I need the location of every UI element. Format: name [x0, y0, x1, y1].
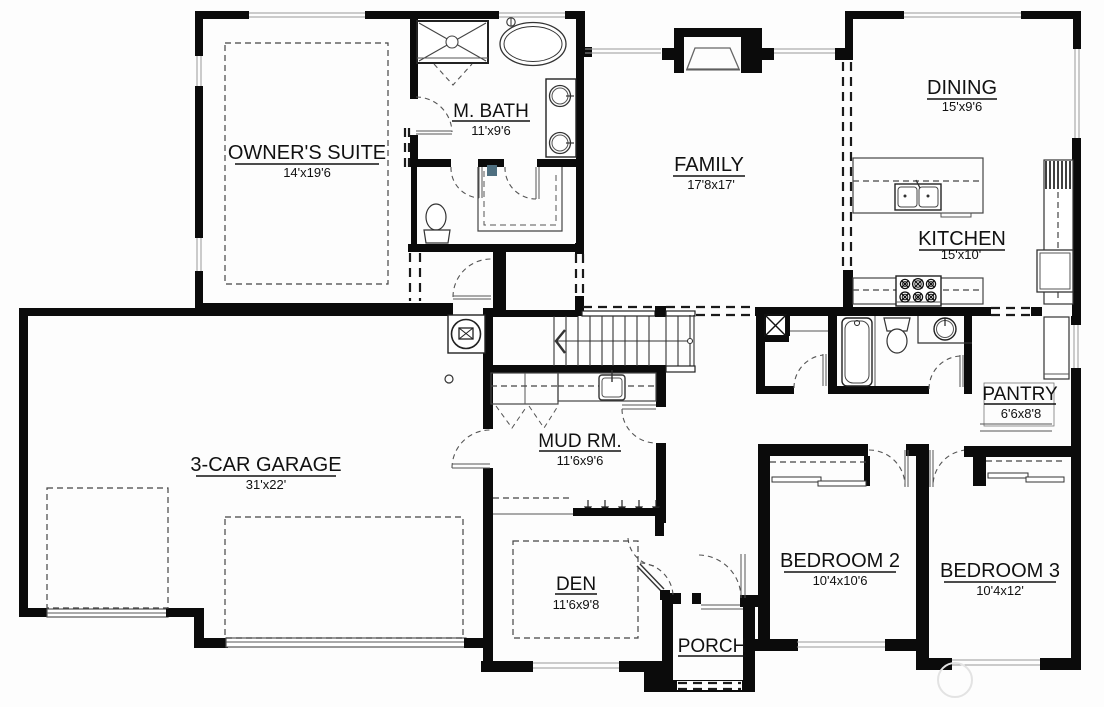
svg-text:MUD RM.: MUD RM. [538, 431, 621, 452]
svg-text:OWNER'S SUITE: OWNER'S SUITE [228, 142, 386, 164]
svg-text:10'4x12': 10'4x12' [976, 583, 1024, 598]
svg-text:BEDROOM 2: BEDROOM 2 [780, 550, 900, 572]
svg-text:DINING: DINING [927, 77, 997, 99]
svg-text:PORCH: PORCH [678, 636, 747, 657]
svg-text:11'x9'6: 11'x9'6 [471, 123, 510, 138]
svg-text:PANTRY: PANTRY [982, 384, 1058, 405]
svg-text:M. BATH: M. BATH [453, 101, 529, 122]
svg-text:17'8x17': 17'8x17' [687, 177, 735, 192]
svg-text:15'x9'6: 15'x9'6 [942, 99, 982, 114]
svg-text:FAMILY: FAMILY [674, 154, 744, 176]
svg-text:BEDROOM 3: BEDROOM 3 [940, 560, 1060, 582]
svg-text:DEN: DEN [556, 574, 596, 595]
svg-text:11'6x9'6: 11'6x9'6 [557, 453, 604, 468]
svg-text:14'x19'6: 14'x19'6 [283, 165, 331, 180]
svg-text:11'6x9'8: 11'6x9'8 [553, 597, 600, 612]
svg-text:15'x10': 15'x10' [941, 247, 981, 262]
svg-text:3-CAR GARAGE: 3-CAR GARAGE [190, 454, 341, 476]
svg-text:6'6x8'8: 6'6x8'8 [1001, 406, 1041, 421]
svg-text:31'x22': 31'x22' [246, 477, 286, 492]
svg-text:10'4x10'6: 10'4x10'6 [813, 573, 868, 588]
